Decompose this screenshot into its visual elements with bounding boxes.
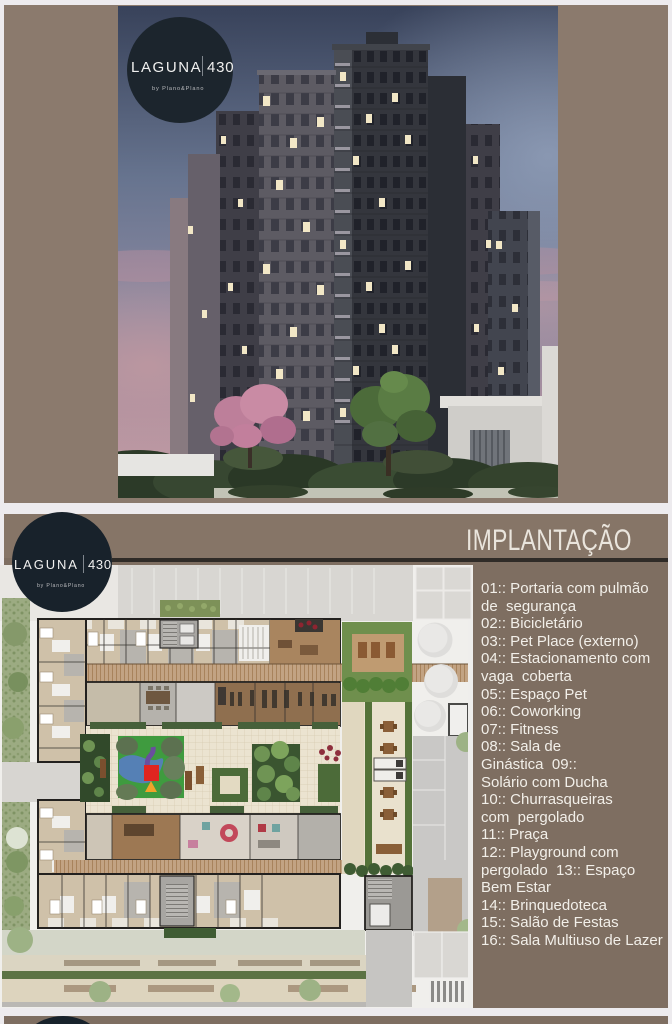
svg-text:430: 430 xyxy=(88,557,112,572)
svg-text:by Plano&Plano: by Plano&Plano xyxy=(152,86,204,92)
svg-text:LAGUNA: LAGUNA xyxy=(14,557,79,572)
svg-text:430: 430 xyxy=(207,59,234,76)
svg-text:LAGUNA: LAGUNA xyxy=(131,59,202,76)
svg-text:by Plano&Plano: by Plano&Plano xyxy=(37,583,85,589)
